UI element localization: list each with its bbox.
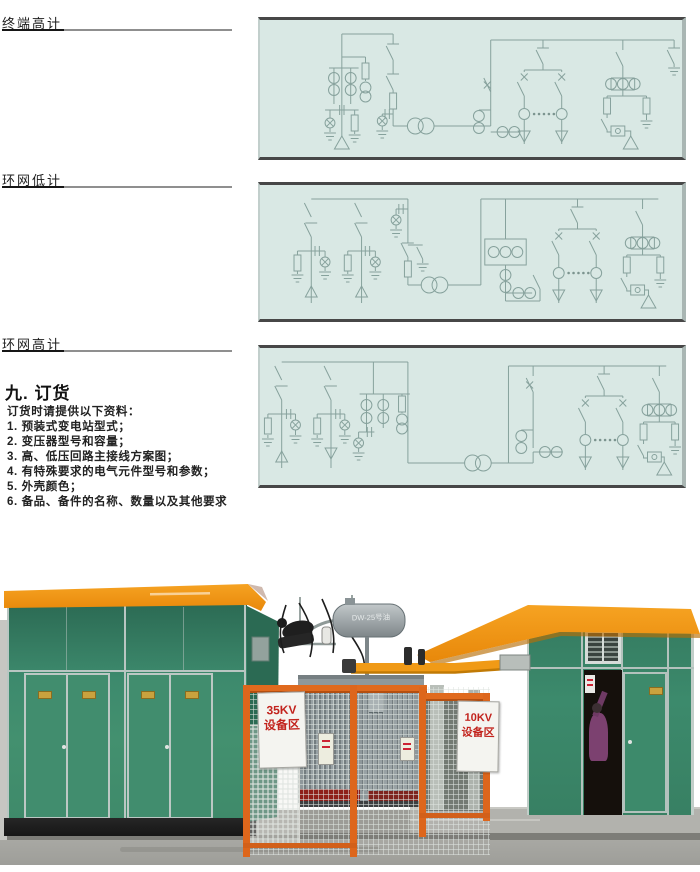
sign-10kv-line1: 10KV — [458, 711, 498, 727]
side-vent — [252, 637, 269, 661]
tag-mark — [322, 746, 330, 748]
sign-35kv: 35KV 设备区 — [257, 691, 307, 768]
duct-connector — [500, 655, 530, 670]
label-ring-low-metering: 环网低计 — [2, 170, 232, 188]
substation-photo: DW-25号油 35KV 设备区 10KV 设备区 — [0, 575, 700, 865]
conservator-cap — [345, 598, 355, 605]
fence-post — [243, 685, 250, 857]
ordering-item: 1. 预装式变电站型式； — [7, 420, 257, 435]
diagram-ring-low — [258, 182, 686, 322]
diagram-terminal-high — [258, 17, 686, 160]
sign-10kv-line2: 设备区 — [458, 726, 498, 742]
label-rule-dark — [2, 186, 64, 188]
label-rule-dark — [2, 350, 64, 352]
ordering-item: 3. 高、低压回路主接线方案图； — [7, 450, 257, 465]
fence-top-rail-right — [421, 693, 490, 701]
label-terminal-high-metering: 终端高计 — [2, 13, 232, 31]
duct-elbow — [342, 659, 356, 673]
ordering-heading: 九. 订货 — [5, 379, 70, 404]
ordering-item: 4. 有特殊要求的电气元件型号和参数； — [7, 465, 257, 480]
ordering-item: 6. 备品、备件的名称、数量以及其他要求 — [7, 495, 257, 510]
ordering-item: 2. 变压器型号和容量； — [7, 435, 257, 450]
circuit-diagram-1 — [260, 20, 682, 157]
tag-mark — [403, 748, 411, 750]
fence-bottom-rail — [243, 843, 357, 848]
duct-insulator — [418, 649, 425, 665]
circuit-diagram-3 — [260, 348, 682, 485]
ordering-intro: 订货时请提供以下资料： — [7, 405, 257, 420]
sign-35kv-line1: 35KV — [258, 702, 304, 718]
warning-tag — [318, 733, 334, 765]
conservator-text: DW-25号油 — [340, 611, 402, 623]
duct-insulator — [404, 647, 412, 665]
tag-mark — [322, 740, 330, 742]
label-ring-high-metering: 环网高计 — [2, 334, 232, 352]
left-cabin-roof — [4, 584, 266, 611]
warning-tag — [400, 737, 415, 761]
breather — [322, 627, 331, 644]
fence-bottom-rail — [419, 813, 490, 818]
diagram-ring-high — [258, 345, 686, 488]
tag-mark — [403, 743, 411, 745]
label-rule-dark — [2, 29, 64, 31]
ordering-item: 5. 外壳颜色； — [7, 480, 257, 495]
circuit-diagram-2 — [260, 185, 682, 319]
fence-post — [350, 685, 357, 857]
sign-35kv-line2: 设备区 — [259, 717, 305, 733]
sign-10kv: 10KV 设备区 — [456, 701, 499, 773]
catalog-page: 终端高计 — [0, 0, 700, 872]
